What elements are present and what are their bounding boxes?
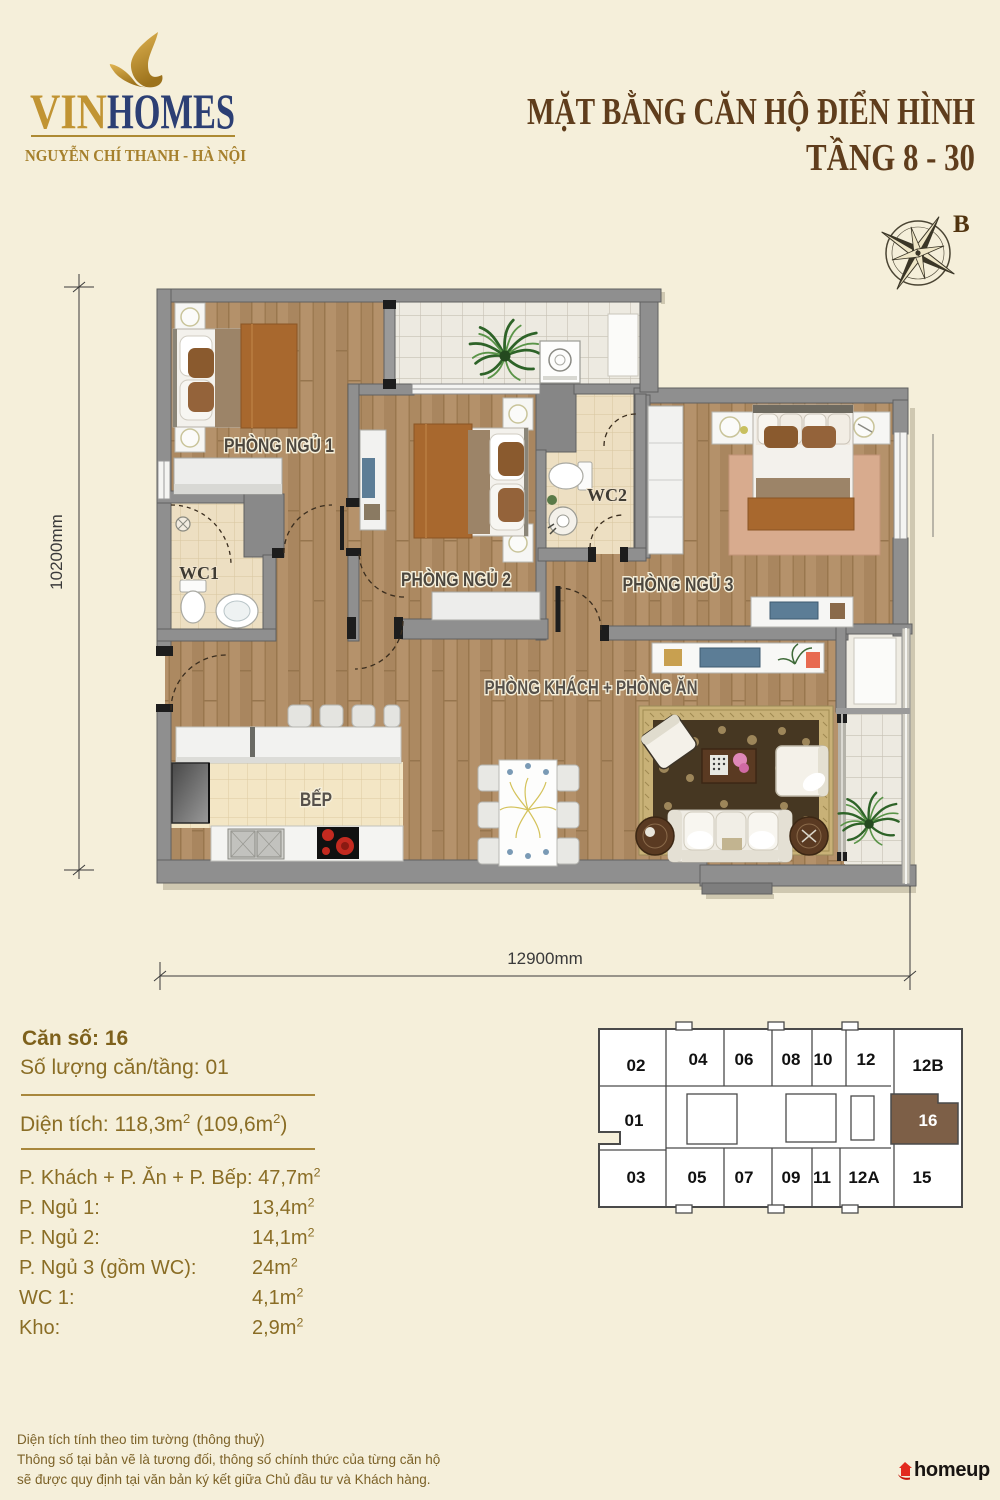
svg-text:06: 06 [735,1050,754,1069]
svg-text:09: 09 [782,1168,801,1187]
svg-text:01: 01 [625,1111,644,1130]
svg-text:10: 10 [814,1050,833,1069]
svg-text:PHÒNG NGỦ 2: PHÒNG NGỦ 2 [401,569,511,591]
svg-text:12A: 12A [848,1168,879,1187]
svg-text:03: 03 [627,1168,646,1187]
svg-text:05: 05 [688,1168,707,1187]
svg-text:PHÒNG KHÁCH + PHÒNG ĂN: PHÒNG KHÁCH + PHÒNG ĂN [485,677,698,699]
svg-text:07: 07 [735,1168,754,1187]
svg-text:12: 12 [857,1050,876,1069]
svg-text:08: 08 [782,1050,801,1069]
svg-text:12900mm: 12900mm [507,949,583,968]
svg-text:10200mm: 10200mm [47,514,66,590]
svg-text:PHÒNG NGỦ 3: PHÒNG NGỦ 3 [623,574,734,596]
svg-text:WC1: WC1 [179,563,219,583]
svg-text:12B: 12B [912,1056,943,1075]
svg-text:15: 15 [913,1168,932,1187]
svg-text:04: 04 [689,1050,708,1069]
svg-text:WC2: WC2 [587,485,627,505]
svg-text:PHÒNG NGỦ 1: PHÒNG NGỦ 1 [224,435,334,457]
svg-text:16: 16 [919,1111,938,1130]
svg-text:02: 02 [627,1056,646,1075]
svg-text:11: 11 [813,1168,831,1187]
svg-text:BẾP: BẾP [300,789,332,811]
